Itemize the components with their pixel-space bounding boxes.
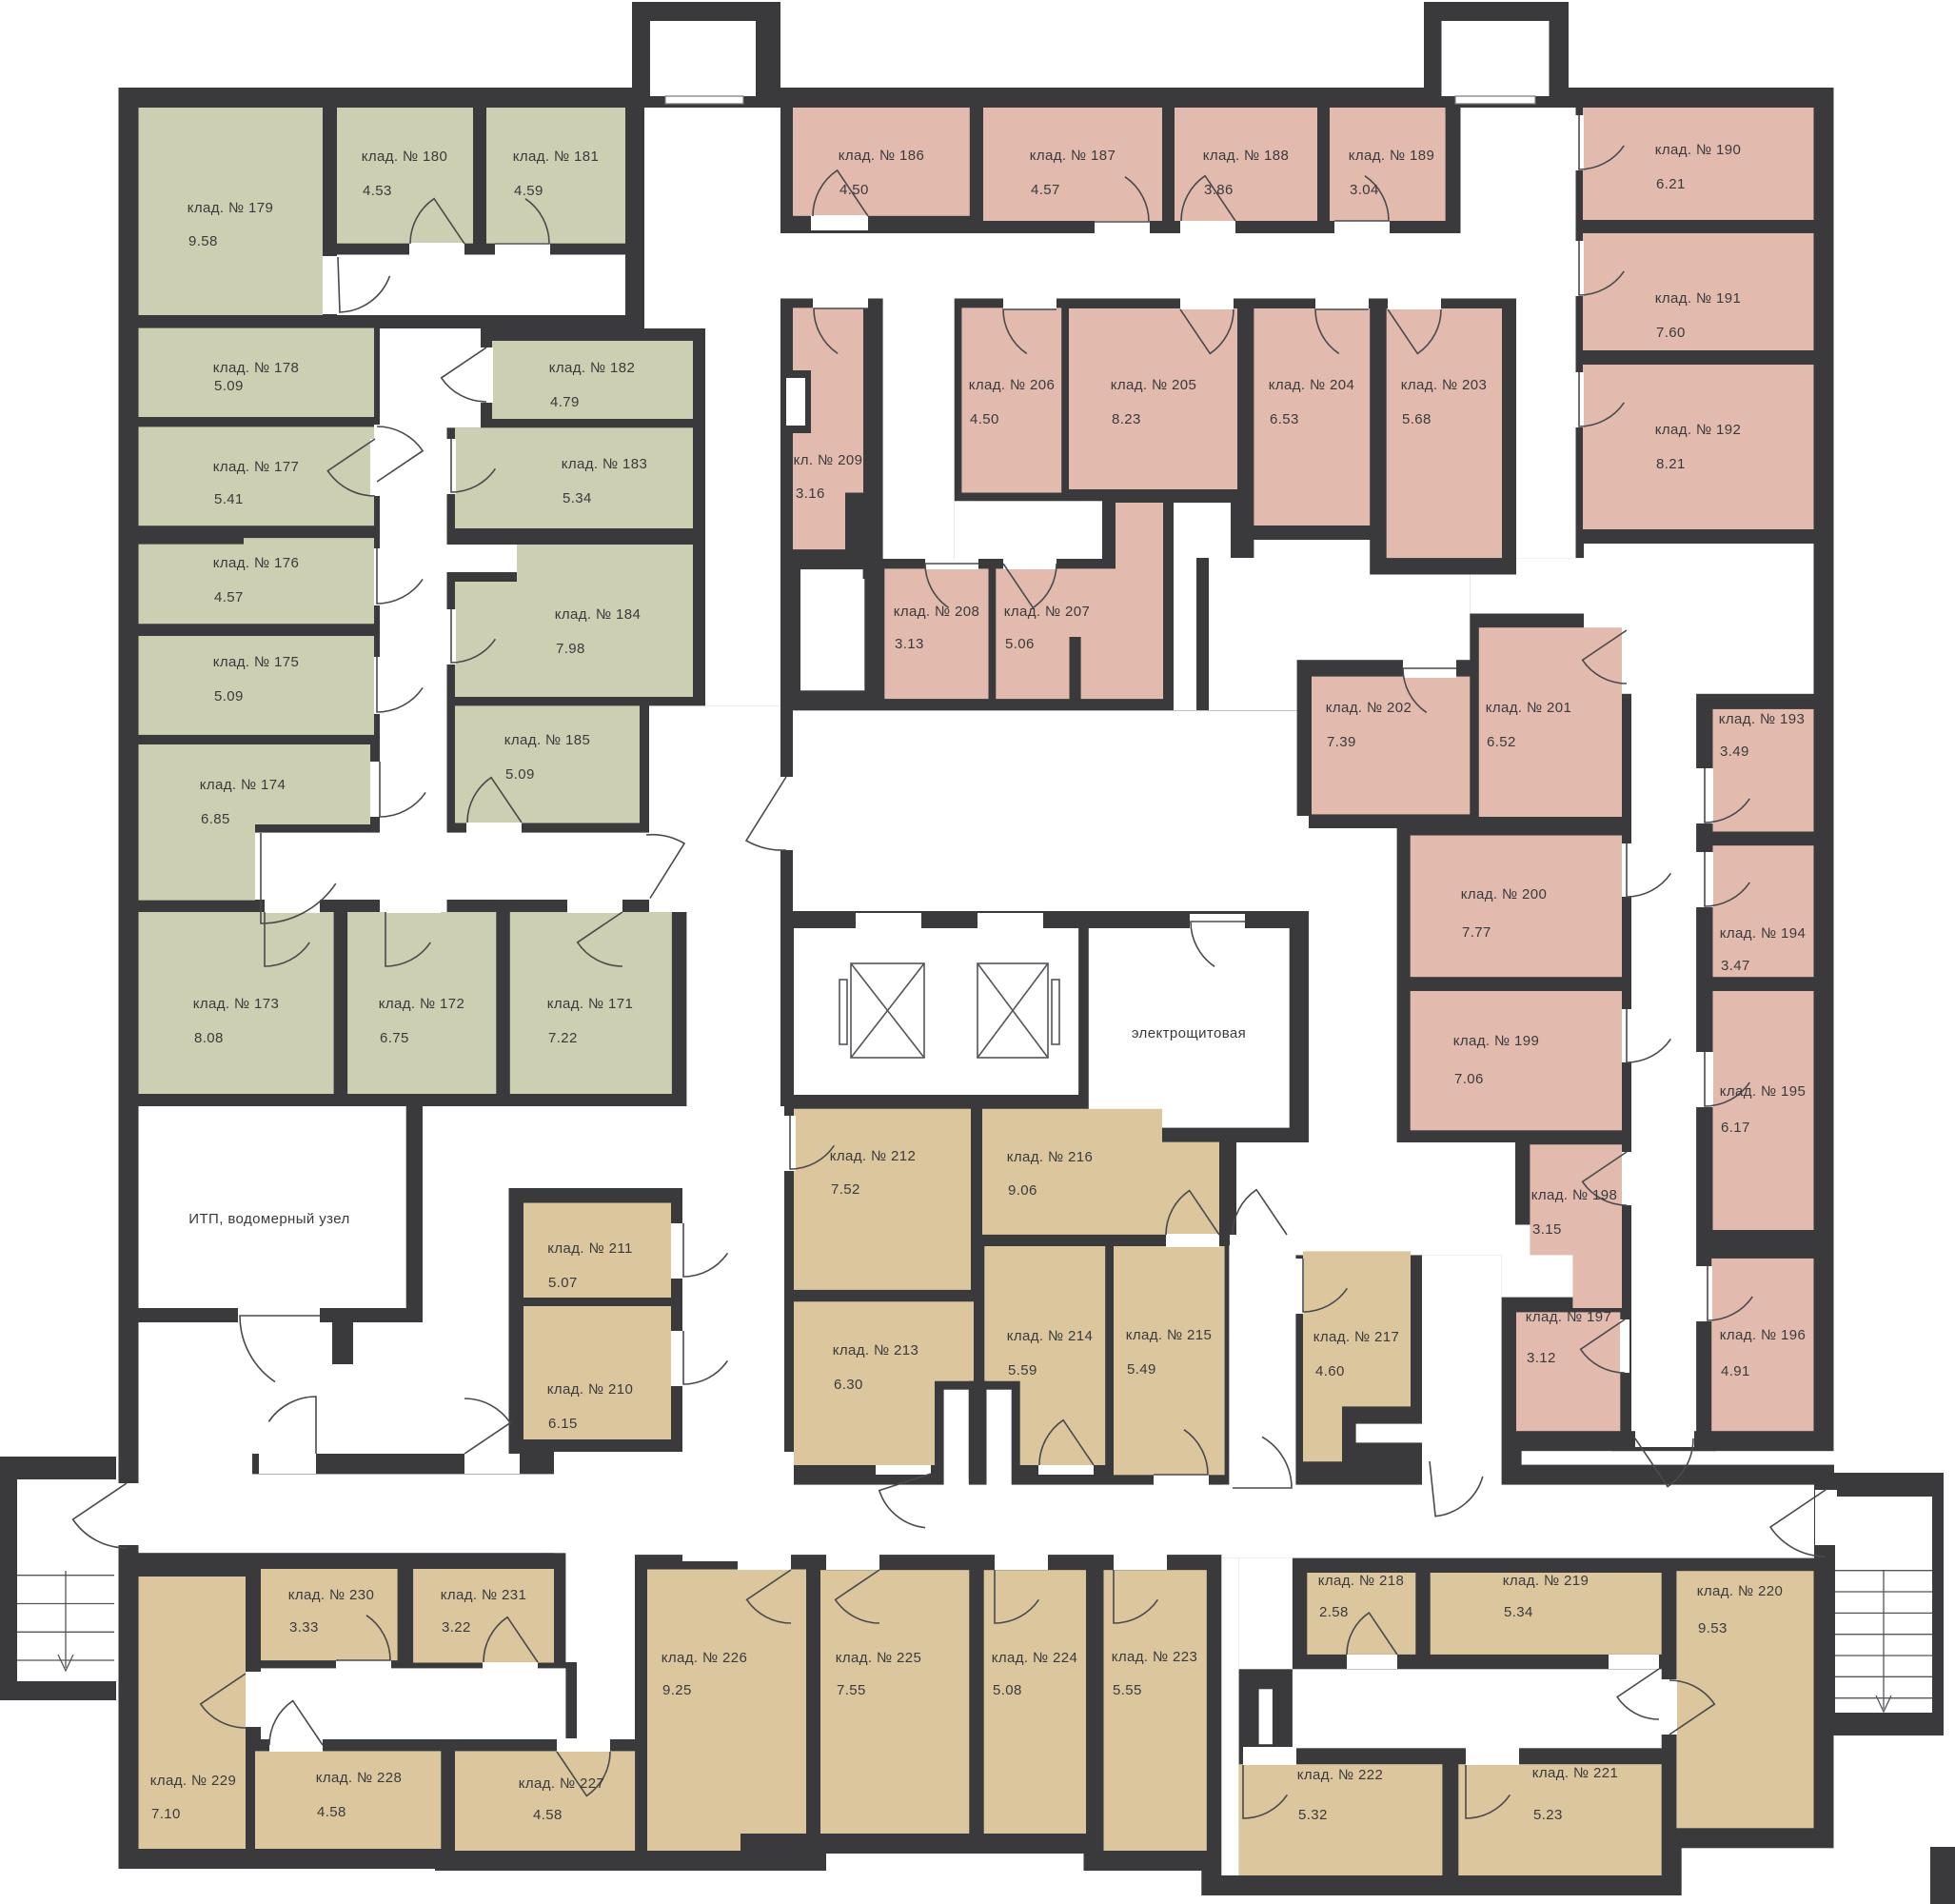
svg-text:клад. № 195: клад. № 195 [1720,1083,1807,1100]
svg-text:5.32: 5.32 [1298,1807,1328,1823]
svg-text:4.59: 4.59 [514,183,543,199]
svg-text:7.22: 7.22 [548,1030,578,1046]
svg-text:клад. № 181: клад. № 181 [513,149,600,165]
svg-text:клад. № 205: клад. № 205 [1111,377,1197,393]
svg-text:9.58: 9.58 [188,233,218,249]
svg-text:7.06: 7.06 [1454,1071,1484,1087]
svg-text:3.15: 3.15 [1532,1221,1562,1238]
svg-text:клад. № 193: клад. № 193 [1719,711,1806,727]
svg-text:клад. № 190: клад. № 190 [1655,142,1742,158]
svg-text:7.98: 7.98 [556,641,585,657]
svg-text:5.09: 5.09 [214,378,244,394]
svg-text:клад. № 174: клад. № 174 [200,777,286,793]
svg-text:клад. № 206: клад. № 206 [969,377,1056,393]
svg-text:7.55: 7.55 [837,1682,866,1698]
svg-text:клад. № 223: клад. № 223 [1112,1649,1198,1665]
svg-text:клад. № 197: клад. № 197 [1526,1309,1612,1325]
svg-text:3.86: 3.86 [1204,182,1234,198]
svg-text:5.34: 5.34 [1504,1604,1533,1620]
svg-text:клад. № 203: клад. № 203 [1401,377,1488,393]
svg-text:9.53: 9.53 [1698,1620,1728,1636]
svg-text:кл. № 209: кл. № 209 [794,452,863,468]
svg-text:4.60: 4.60 [1315,1363,1345,1379]
svg-text:5.68: 5.68 [1402,411,1432,427]
svg-text:клад. № 186: клад. № 186 [839,148,925,164]
svg-text:5.07: 5.07 [548,1275,578,1291]
svg-text:8.21: 8.21 [1656,456,1686,472]
svg-text:клад. № 227: клад. № 227 [519,1775,605,1792]
svg-text:клад. № 200: клад. № 200 [1461,886,1548,902]
svg-text:клад. № 225: клад. № 225 [836,1650,922,1666]
svg-text:электрощитовая: электрощитовая [1132,1025,1246,1041]
svg-text:7.52: 7.52 [831,1181,860,1198]
svg-text:клад. № 194: клад. № 194 [1720,925,1807,942]
svg-text:клад. № 198: клад. № 198 [1531,1187,1618,1203]
svg-text:5.09: 5.09 [505,766,535,783]
svg-text:клад. № 211: клад. № 211 [547,1240,633,1257]
svg-text:клад. № 177: клад. № 177 [213,459,300,475]
svg-text:клад. № 185: клад. № 185 [504,732,591,748]
svg-text:5.06: 5.06 [1005,636,1035,652]
svg-text:клад. № 188: клад. № 188 [1203,148,1290,164]
svg-text:клад. № 216: клад. № 216 [1007,1149,1094,1165]
svg-text:6.15: 6.15 [548,1416,578,1432]
svg-text:клад. № 179: клад. № 179 [188,200,274,216]
svg-text:клад. № 219: клад. № 219 [1503,1573,1590,1589]
svg-text:7.77: 7.77 [1462,924,1491,941]
svg-text:4.91: 4.91 [1721,1363,1750,1379]
svg-text:клад. № 212: клад. № 212 [830,1148,917,1164]
svg-text:5.41: 5.41 [214,491,244,507]
svg-text:клад. № 184: клад. № 184 [555,606,642,623]
svg-text:5.59: 5.59 [1008,1362,1037,1378]
svg-text:4.53: 4.53 [363,183,392,199]
svg-text:клад. № 208: клад. № 208 [894,604,980,620]
svg-text:3.16: 3.16 [796,486,825,502]
svg-text:клад. № 189: клад. № 189 [1349,148,1435,164]
svg-text:5.34: 5.34 [563,490,592,506]
svg-text:клад. № 218: клад. № 218 [1318,1573,1405,1589]
svg-text:5.55: 5.55 [1113,1682,1142,1698]
svg-text:6.85: 6.85 [201,811,230,827]
svg-text:5.23: 5.23 [1533,1807,1563,1823]
svg-text:клад. № 222: клад. № 222 [1297,1767,1384,1783]
svg-text:6.30: 6.30 [834,1377,863,1393]
svg-text:5.09: 5.09 [214,688,244,704]
svg-text:клад. № 229: клад. № 229 [150,1773,237,1789]
svg-text:клад. № 220: клад. № 220 [1697,1583,1784,1599]
svg-text:3.49: 3.49 [1720,744,1749,760]
svg-text:8.23: 8.23 [1112,411,1141,427]
svg-text:клад. № 226: клад. № 226 [662,1650,748,1666]
svg-text:3.47: 3.47 [1721,958,1750,974]
svg-text:клад. № 230: клад. № 230 [288,1587,375,1603]
svg-text:клад. № 214: клад. № 214 [1007,1328,1094,1344]
svg-text:5.08: 5.08 [993,1682,1022,1698]
svg-text:3.22: 3.22 [442,1619,471,1636]
svg-text:6.52: 6.52 [1487,734,1516,750]
svg-text:клад. № 180: клад. № 180 [362,149,448,165]
svg-text:клад. № 215: клад. № 215 [1126,1327,1213,1343]
svg-text:4.58: 4.58 [317,1804,346,1820]
svg-text:клад. № 178: клад. № 178 [213,360,300,376]
svg-text:клад. № 187: клад. № 187 [1030,148,1116,164]
svg-text:клад. № 201: клад. № 201 [1486,700,1572,716]
svg-text:клад. № 213: клад. № 213 [833,1342,919,1359]
svg-text:6.75: 6.75 [380,1030,409,1046]
svg-text:4.58: 4.58 [533,1807,563,1823]
svg-text:3.04: 3.04 [1350,182,1379,198]
svg-text:клад. № 171: клад. № 171 [547,996,634,1012]
svg-text:7.60: 7.60 [1656,325,1686,341]
svg-text:3.13: 3.13 [895,636,924,652]
svg-text:клад. № 191: клад. № 191 [1655,290,1742,307]
svg-text:7.39: 7.39 [1327,734,1356,750]
svg-text:4.79: 4.79 [550,394,580,410]
svg-text:клад. № 207: клад. № 207 [1004,604,1091,620]
svg-text:клад. № 172: клад. № 172 [379,996,465,1012]
svg-text:клад. № 175: клад. № 175 [213,654,300,670]
svg-text:7.10: 7.10 [151,1806,181,1822]
svg-text:3.12: 3.12 [1527,1350,1556,1366]
svg-text:6.53: 6.53 [1270,411,1299,427]
svg-text:клад. № 192: клад. № 192 [1655,422,1742,438]
svg-text:клад. № 217: клад. № 217 [1313,1329,1400,1345]
svg-text:5.49: 5.49 [1127,1361,1156,1378]
svg-text:ИТП, водомерный узел: ИТП, водомерный узел [188,1211,349,1227]
svg-text:6.21: 6.21 [1656,176,1686,192]
svg-text:клад. № 196: клад. № 196 [1720,1327,1807,1343]
svg-text:9.25: 9.25 [662,1682,692,1698]
svg-text:клад. № 224: клад. № 224 [992,1650,1078,1666]
svg-text:4.50: 4.50 [839,182,869,198]
svg-text:4.57: 4.57 [214,589,244,605]
svg-text:клад. № 202: клад. № 202 [1326,700,1412,716]
svg-text:9.06: 9.06 [1008,1182,1037,1199]
svg-text:клад. № 204: клад. № 204 [1269,377,1355,393]
svg-text:6.17: 6.17 [1721,1120,1750,1136]
svg-text:клад. № 221: клад. № 221 [1532,1765,1619,1781]
svg-text:2.58: 2.58 [1319,1604,1349,1620]
svg-text:клад. № 182: клад. № 182 [549,360,636,376]
svg-text:клад. № 183: клад. № 183 [562,456,648,472]
svg-text:8.08: 8.08 [194,1030,224,1046]
svg-text:клад. № 176: клад. № 176 [213,555,300,571]
svg-text:клад. № 173: клад. № 173 [193,996,280,1012]
svg-text:4.57: 4.57 [1031,182,1060,198]
svg-text:клад. № 210: клад. № 210 [547,1381,634,1398]
svg-text:клад. № 231: клад. № 231 [441,1587,527,1603]
svg-text:клад. № 199: клад. № 199 [1453,1033,1540,1049]
svg-text:3.33: 3.33 [289,1619,319,1636]
svg-text:4.50: 4.50 [970,411,999,427]
svg-text:клад. № 228: клад. № 228 [316,1770,403,1786]
